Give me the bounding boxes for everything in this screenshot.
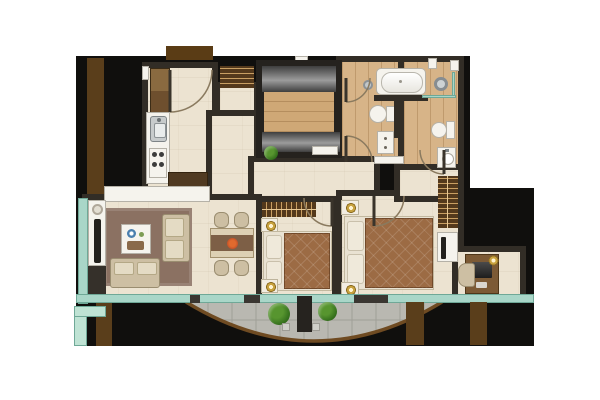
toilet-tank: [446, 121, 455, 139]
window-top-bath1: [428, 58, 437, 69]
shower-head-ensuite: [434, 77, 448, 91]
sofa-cushion: [114, 262, 134, 275]
sink-faucet: [445, 149, 449, 152]
window-top-bath2: [450, 60, 459, 71]
nightstand: [261, 279, 278, 293]
desk-chair: [458, 263, 475, 287]
sink-faucet: [157, 118, 161, 122]
bedroom2-wardrobe: [438, 176, 458, 228]
bath-threshold: [374, 156, 404, 164]
bedroom1-closet: [262, 202, 316, 217]
toilet-bowl: [431, 122, 447, 138]
shower-glass-h: [422, 95, 456, 98]
bathtub-basin: [381, 72, 423, 93]
keyboard: [476, 282, 487, 288]
bed1-duvet: [284, 233, 330, 289]
decor-tray: [127, 241, 144, 250]
shower-glass-v: [452, 72, 455, 96]
desk-lamp: [488, 255, 499, 266]
floor-plan: [0, 0, 600, 400]
loveseat: [162, 214, 190, 262]
decor-small: [139, 232, 144, 237]
lamp: [266, 282, 276, 292]
window-left: [142, 66, 149, 80]
closet-rod: [262, 209, 316, 210]
tv-screen: [441, 237, 446, 259]
wardrobe-rod: [447, 176, 448, 228]
nightstand: [261, 218, 278, 232]
column: [406, 302, 424, 345]
lamp: [266, 221, 276, 231]
toilet-ensuite: [430, 120, 458, 140]
core-threshold: [312, 146, 338, 155]
shower-head-main: [363, 80, 373, 90]
cabinet-knob: [384, 137, 387, 140]
bed2-duvet: [365, 218, 433, 288]
bed2-pillow: [347, 221, 364, 251]
dining-table: [210, 228, 254, 258]
glass-wall-left: [78, 198, 88, 304]
bed1-pillow: [266, 235, 282, 259]
nightstand: [341, 200, 359, 215]
bathtub: [376, 68, 426, 95]
balcony-plant: [318, 302, 337, 321]
exterior-fin: [87, 58, 104, 210]
speaker: [92, 204, 103, 215]
balcony-divider: [297, 296, 312, 332]
loveseat-cushion: [165, 240, 184, 259]
core-wood-center: [264, 92, 334, 132]
sofa-cushion: [137, 262, 157, 275]
entry-closet-rod: [220, 66, 254, 88]
bedroom2-tv-unit: [437, 232, 458, 262]
kitchen-peninsula: [104, 186, 210, 202]
burner: [152, 162, 157, 167]
coffee-table: [121, 224, 151, 254]
dining-chair: [214, 260, 229, 276]
paver: [282, 323, 290, 331]
balcony-plant: [268, 303, 290, 325]
paver: [312, 323, 320, 331]
burner: [159, 152, 164, 157]
vanity-sink: [437, 147, 456, 168]
slider-door-gap: [354, 295, 388, 303]
building-slab-topright: [458, 56, 470, 190]
bath-partition-wall: [394, 98, 402, 138]
kitchen-sink: [150, 116, 167, 142]
loveseat-cushion: [165, 218, 184, 237]
kitchen-stove: [149, 148, 167, 178]
entry-closet-floor: [220, 88, 254, 116]
bathtub-drain: [399, 80, 402, 83]
dining-chair: [234, 260, 249, 276]
lamp: [346, 203, 356, 213]
sofa: [110, 258, 160, 288]
hall2-floor: [254, 162, 374, 196]
entry-mat: [166, 46, 213, 60]
tv-screen: [94, 219, 101, 263]
dining-chair: [234, 212, 249, 228]
sink-basin: [154, 123, 166, 138]
fruit-bowl: [227, 238, 238, 249]
bed2-pillow: [347, 254, 364, 284]
toilet-main: [369, 104, 397, 124]
burner: [152, 152, 157, 157]
cabinet-knob: [384, 146, 387, 149]
burner: [159, 162, 164, 167]
slider-door-gap: [190, 295, 200, 303]
kitchen-cabinets: [150, 68, 170, 114]
sink-bowl: [442, 153, 454, 165]
dining-chair: [214, 212, 229, 228]
core-panel-top: [262, 66, 336, 92]
column: [470, 302, 487, 345]
toilet-bowl: [369, 105, 387, 123]
decor-plate: [127, 229, 136, 238]
bathroom-cabinet: [377, 131, 394, 154]
tv-panel: [88, 200, 106, 266]
parapet-horizontal: [74, 306, 106, 317]
hall-floor: [212, 116, 254, 198]
slider-door-gap: [244, 295, 260, 303]
hall-plant: [264, 146, 278, 160]
